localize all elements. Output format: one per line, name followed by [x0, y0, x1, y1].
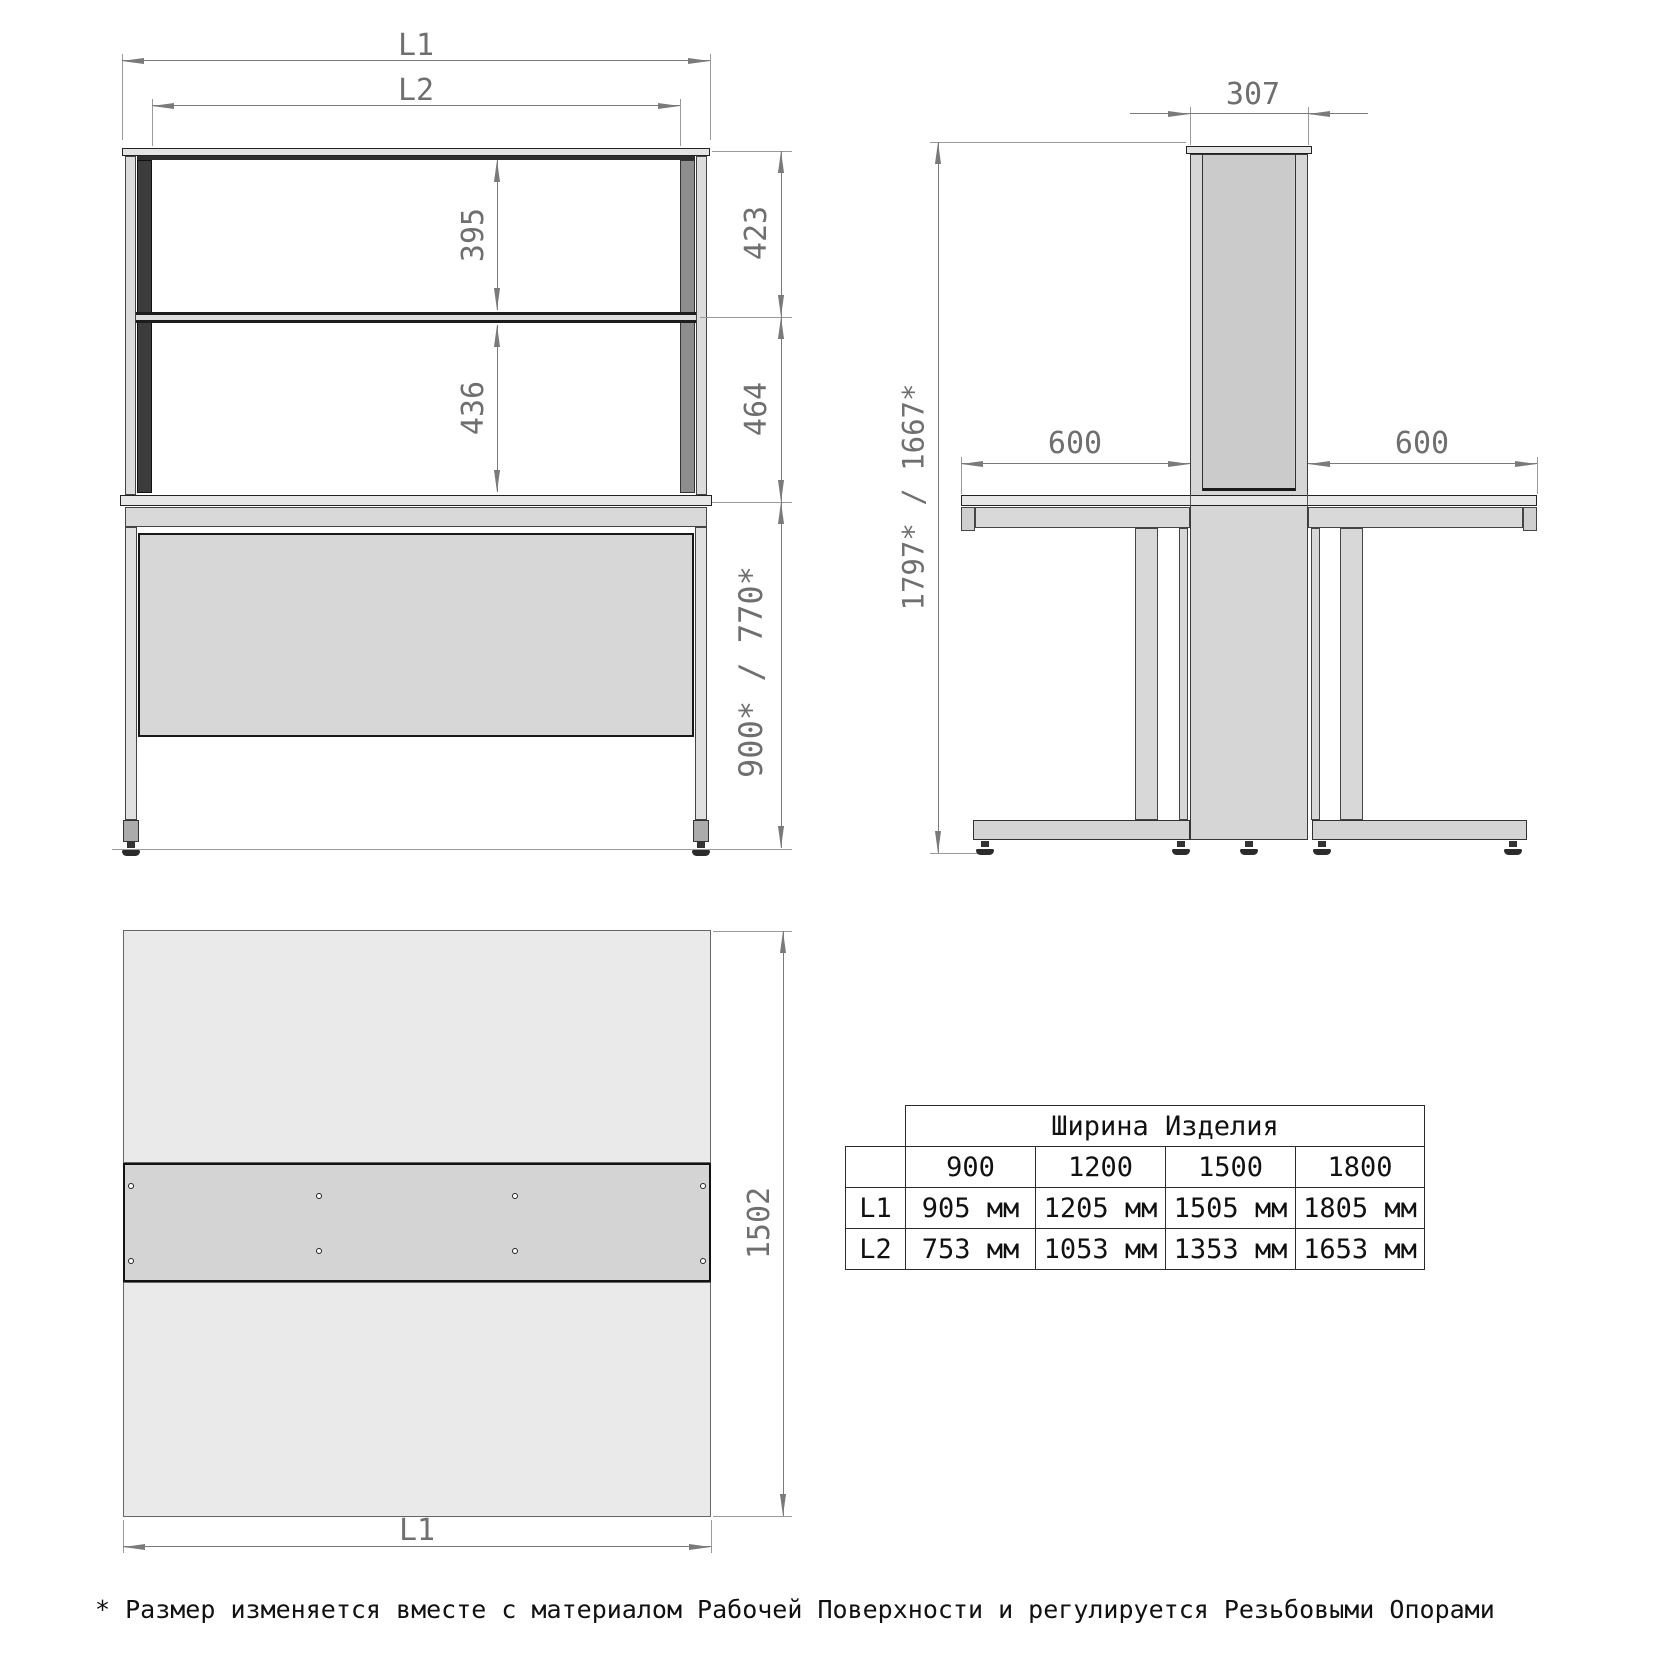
- top-l1-dimension-label: L1: [399, 1516, 435, 1546]
- mounting-hole: [512, 1248, 518, 1254]
- top-l1-arrow-left: [123, 1543, 145, 1551]
- middle-shelf: [136, 312, 696, 323]
- mounting-hole: [700, 1258, 706, 1264]
- adjustable-foot-side-inner-left: [1171, 841, 1191, 855]
- dim-1502-line: [783, 931, 784, 1516]
- size-table-value: 905 мм: [905, 1187, 1036, 1229]
- size-table-value: 1205 мм: [1035, 1187, 1166, 1229]
- dim-423-line: [781, 151, 782, 317]
- size-table-col-header: 1200: [1035, 1146, 1166, 1188]
- mounting-hole: [700, 1183, 706, 1189]
- size-table-value: 1053 мм: [1035, 1228, 1166, 1270]
- leg-foot-block-left: [123, 820, 139, 842]
- apron-end-cap-right: [1523, 507, 1537, 531]
- tabletop-front: [120, 495, 712, 506]
- shelf-upright-left-outer: [125, 156, 136, 495]
- shelf-top-board-underside: [137, 156, 695, 160]
- size-table-row-label: L1: [845, 1187, 906, 1229]
- size-table-col-header: 1800: [1295, 1146, 1425, 1188]
- dim-600-right-extension: [1537, 457, 1538, 494]
- size-table-value: 1653 мм: [1295, 1228, 1425, 1270]
- apron-left: [975, 507, 1190, 528]
- dim-600-left-arrow-left: [961, 460, 983, 468]
- worktop-rear: [123, 930, 711, 1163]
- shelf-top-board: [122, 148, 710, 156]
- side-leg-right-thin: [1311, 528, 1320, 820]
- size-table-value: 753 мм: [905, 1228, 1036, 1270]
- size-table-value: 1505 мм: [1165, 1187, 1296, 1229]
- riser-column-inner-panel: [1202, 154, 1296, 491]
- dim-307-line: [1130, 113, 1368, 114]
- shelf-lower-dim-line: [497, 325, 498, 492]
- mounting-hole: [512, 1193, 518, 1199]
- tabletop-column-edge-left: [1190, 495, 1191, 506]
- dim-1502-extension-top: [713, 931, 792, 932]
- dim-423-label: 423: [742, 206, 772, 260]
- shelf-column-right: [680, 160, 695, 493]
- dim-table-height-arrow-top: [777, 502, 785, 524]
- shelf-lower-arrow-top: [493, 325, 501, 347]
- l1-extension-left: [122, 54, 123, 140]
- size-table-value: 1805 мм: [1295, 1187, 1425, 1229]
- front-floor-line: [112, 849, 792, 850]
- dim-600-left-label: 600: [1048, 429, 1102, 459]
- apron-end-cap-left: [961, 507, 975, 531]
- baseplate-right: [1312, 820, 1527, 840]
- size-table-row-label: L2: [845, 1228, 906, 1270]
- shelf-column-left: [137, 160, 152, 493]
- top-l1-extension-left: [123, 1520, 124, 1553]
- l2-dimension-label: L2: [398, 76, 434, 106]
- size-table-col-header: 900: [905, 1146, 1036, 1188]
- dim-464-arrow-bottom: [777, 480, 785, 502]
- dim-464-arrow-top: [777, 317, 785, 339]
- mounting-hole: [128, 1258, 134, 1264]
- dim-423-arrow-top: [777, 151, 785, 173]
- side-leg-left-wide: [1135, 528, 1158, 820]
- dim-307-label: 307: [1226, 80, 1280, 110]
- dim-464-label: 464: [742, 382, 772, 436]
- shelf-upper-arrow-bottom: [493, 288, 501, 310]
- baseplate-left: [973, 820, 1190, 840]
- dim-307-arrow-left: [1168, 110, 1190, 118]
- table-front-panel: [138, 533, 694, 737]
- tabletop-side: [961, 495, 1537, 506]
- shelf-lower-arrow-bottom: [493, 470, 501, 492]
- size-table-stub-cell: [845, 1146, 906, 1188]
- size-table-col-header: 1500: [1165, 1146, 1296, 1188]
- top-l1-arrow-right: [689, 1543, 711, 1551]
- riser-band: [123, 1163, 711, 1282]
- mounting-hole: [316, 1193, 322, 1199]
- mounting-hole: [316, 1248, 322, 1254]
- l2-arrow-right: [658, 102, 680, 110]
- dim-600-left-arrow-right: [1168, 460, 1190, 468]
- dim-1502-label: 1502: [745, 1187, 775, 1259]
- l2-arrow-left: [152, 102, 174, 110]
- table-leg-right: [695, 527, 707, 820]
- top-l1-extension-right: [711, 1520, 712, 1553]
- dim-1502-arrow-top: [779, 931, 787, 953]
- shelf-lower-dim-label: 436: [459, 381, 489, 435]
- shelf-upright-right-outer: [696, 156, 707, 495]
- table-leg-left: [125, 527, 137, 820]
- adjustable-foot-side-outer-left: [975, 841, 995, 855]
- dim-height-line: [938, 142, 939, 853]
- dim-464-line: [781, 317, 782, 502]
- shelf-upper-arrow-top: [493, 160, 501, 182]
- table-apron-front: [125, 507, 707, 527]
- footnote-text: * Размер изменяется вместе с материалом …: [95, 1595, 1495, 1624]
- shelf-upper-dim-line: [497, 160, 498, 310]
- right-extension-tabletop: [712, 502, 792, 503]
- apron-right: [1308, 507, 1523, 528]
- mounting-hole: [128, 1183, 134, 1189]
- height-extension-top: [930, 142, 1186, 143]
- dim-table-height-line: [781, 502, 782, 848]
- l2-extension-right: [680, 99, 681, 146]
- leg-foot-block-right: [693, 820, 709, 842]
- dim-600-right-line: [1308, 463, 1537, 464]
- adjustable-foot-side-outer-right: [1503, 841, 1523, 855]
- adjustable-foot-side-inner-right: [1312, 841, 1332, 855]
- dim-600-right-arrow-right: [1515, 460, 1537, 468]
- dim-table-height-arrow-bottom: [777, 826, 785, 848]
- dim-height-arrow-bottom: [934, 831, 942, 853]
- dim-height-label: 1797* / 1667*: [900, 384, 929, 611]
- side-leg-left-thin: [1179, 528, 1188, 820]
- dim-height-arrow-top: [934, 142, 942, 164]
- dim-307-arrow-right: [1308, 110, 1330, 118]
- tabletop-column-edge-right: [1307, 495, 1308, 506]
- dim-600-right-arrow-left: [1308, 460, 1330, 468]
- l1-extension-right: [710, 54, 711, 140]
- dim-table-height-label: 900* / 770*: [735, 566, 767, 778]
- right-extension-shelf: [700, 317, 792, 318]
- riser-column-cap: [1186, 146, 1312, 154]
- dim-600-right-label: 600: [1395, 429, 1449, 459]
- side-leg-right-wide: [1340, 528, 1363, 820]
- l1-arrow-right: [688, 57, 710, 65]
- shelf-upper-dim-label: 395: [459, 208, 489, 262]
- adjustable-foot-side-center: [1239, 841, 1259, 855]
- dim-423-arrow-bottom: [777, 295, 785, 317]
- size-table-value: 1353 мм: [1165, 1228, 1296, 1270]
- technical-drawing-canvas: L1 L2 395 436 423: [0, 0, 1680, 1680]
- right-extension-top: [712, 151, 792, 152]
- dim-600-left-line: [961, 463, 1190, 464]
- l1-dimension-label: L1: [398, 31, 434, 61]
- l1-arrow-left: [122, 57, 144, 65]
- worktop-front: [123, 1282, 711, 1517]
- size-table-title: Ширина Изделия: [905, 1105, 1425, 1147]
- dim-1502-arrow-bottom: [779, 1494, 787, 1516]
- dim-1502-extension-bottom: [713, 1516, 792, 1517]
